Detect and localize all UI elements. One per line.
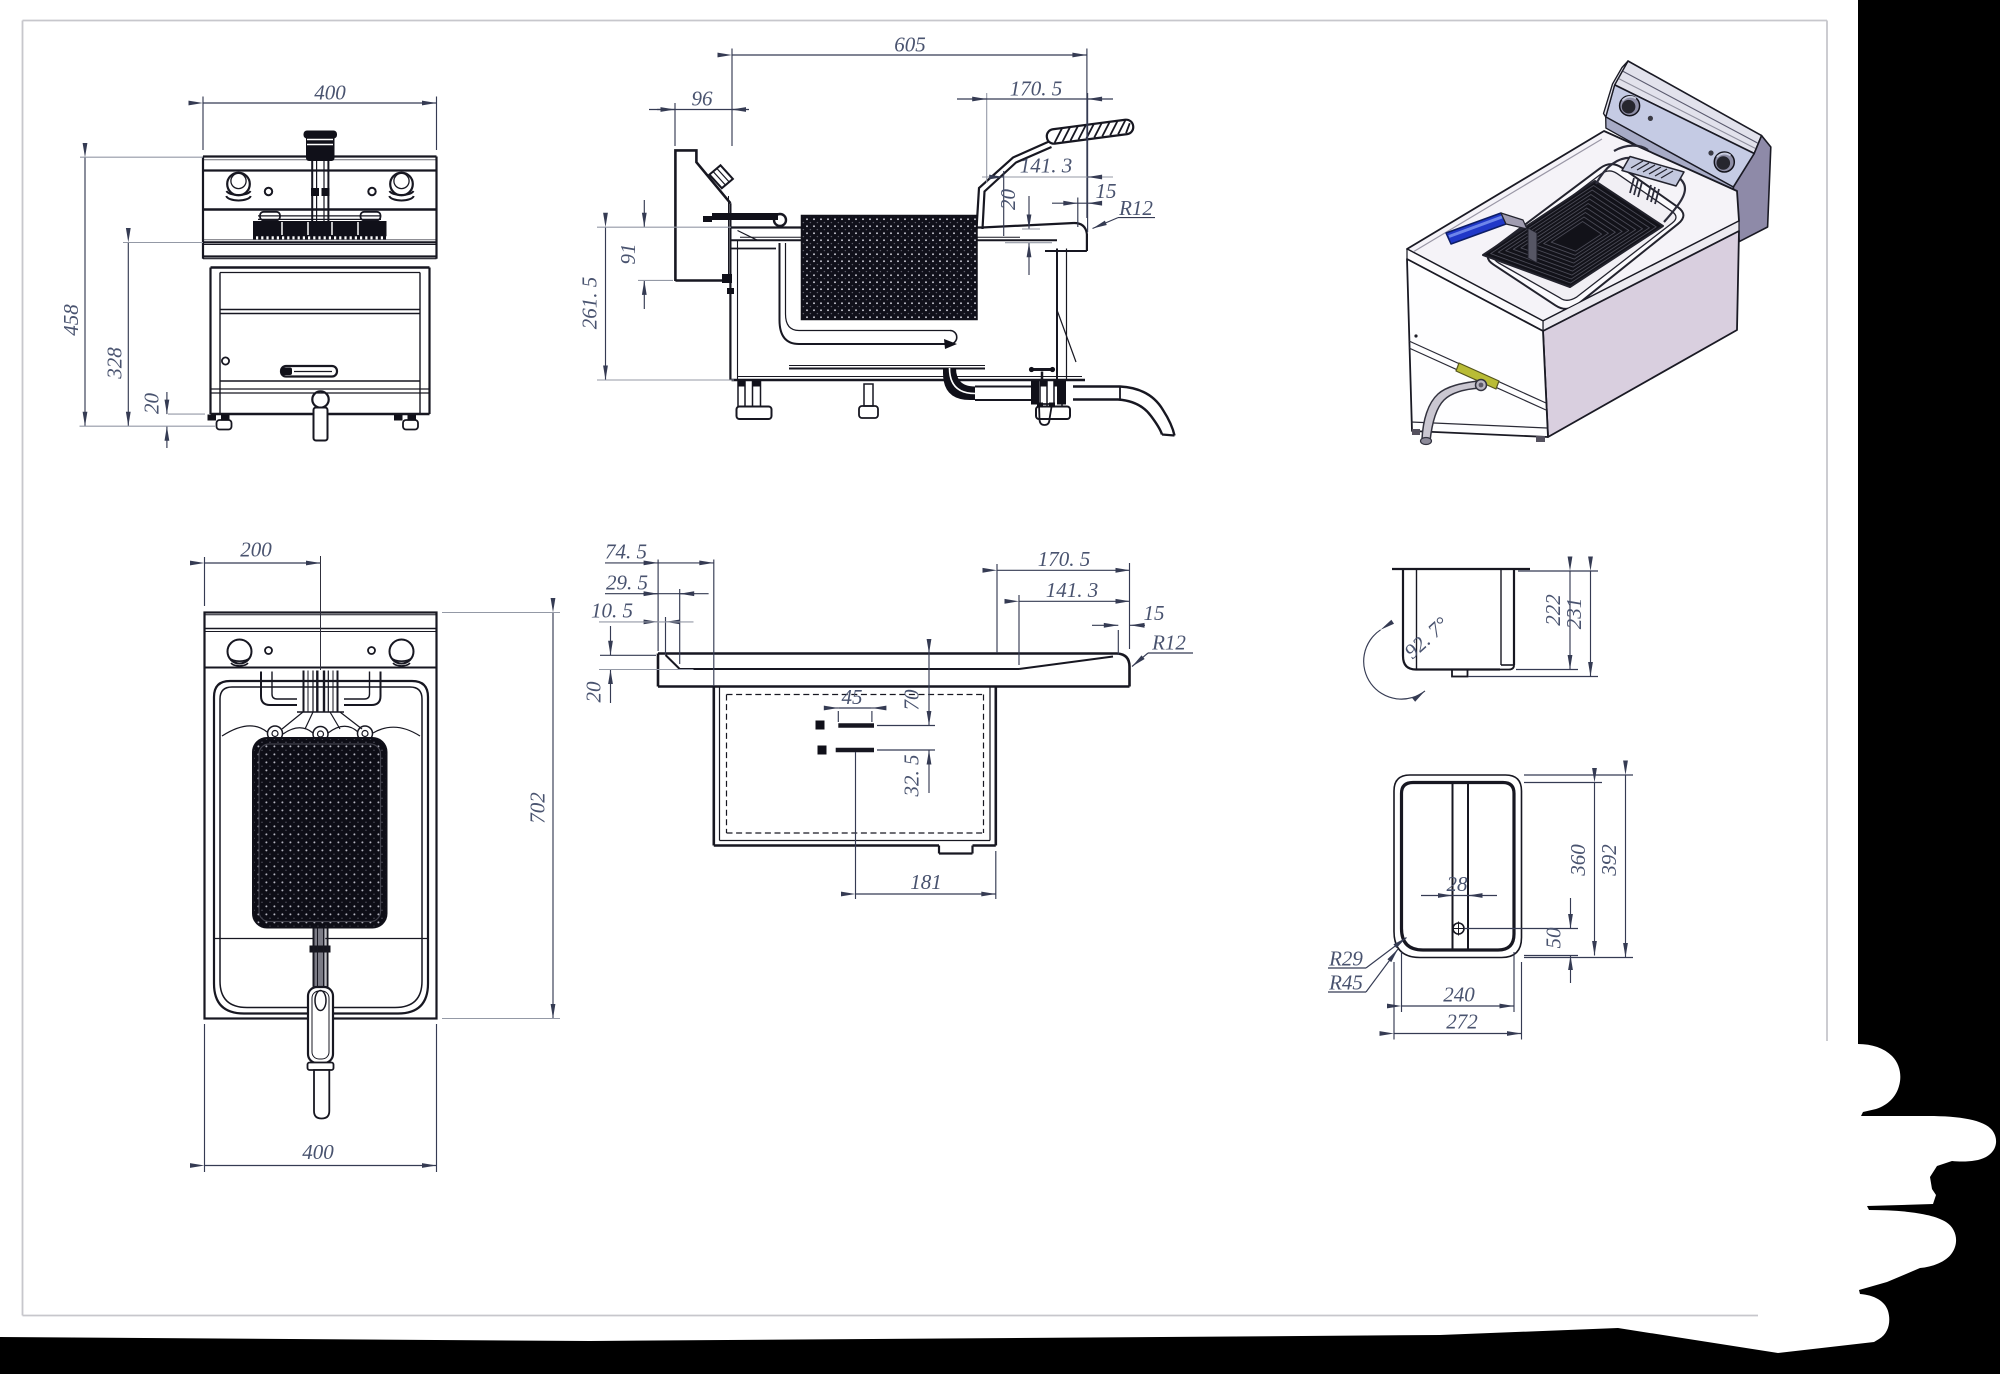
svg-text:328: 328 [103, 347, 127, 380]
svg-text:231: 231 [1562, 598, 1586, 630]
svg-text:74. 5: 74. 5 [605, 540, 647, 564]
svg-text:170. 5: 170. 5 [1010, 77, 1063, 101]
svg-text:R12: R12 [1118, 196, 1153, 220]
svg-text:28: 28 [1447, 872, 1469, 896]
svg-text:272: 272 [1446, 1010, 1478, 1034]
svg-text:50: 50 [1542, 927, 1566, 949]
svg-text:20: 20 [582, 681, 606, 703]
svg-text:392: 392 [1597, 844, 1621, 877]
svg-text:458: 458 [59, 304, 83, 336]
svg-text:R29: R29 [1328, 947, 1363, 971]
svg-text:261. 5: 261. 5 [578, 277, 602, 330]
svg-text:15: 15 [1144, 601, 1165, 625]
svg-text:32. 5: 32. 5 [900, 755, 924, 798]
svg-text:181: 181 [910, 870, 942, 894]
svg-text:200: 200 [240, 538, 272, 562]
svg-text:400: 400 [302, 1140, 334, 1164]
svg-text:15: 15 [1096, 179, 1117, 203]
svg-text:10. 5: 10. 5 [591, 599, 633, 623]
svg-text:70: 70 [900, 689, 924, 711]
svg-text:20: 20 [996, 189, 1020, 211]
svg-text:170. 5: 170. 5 [1038, 547, 1091, 571]
svg-text:R12: R12 [1151, 631, 1186, 655]
svg-text:240: 240 [1443, 983, 1475, 1007]
svg-text:45: 45 [842, 685, 863, 709]
svg-text:R45: R45 [1328, 971, 1363, 995]
svg-text:20: 20 [140, 393, 164, 415]
svg-text:141. 3: 141. 3 [1046, 578, 1099, 602]
svg-text:29. 5: 29. 5 [606, 571, 648, 595]
svg-text:702: 702 [526, 792, 550, 824]
svg-text:400: 400 [314, 81, 346, 105]
svg-text:141. 3: 141. 3 [1020, 154, 1073, 178]
svg-text:96: 96 [692, 87, 714, 111]
svg-text:360: 360 [1566, 844, 1590, 877]
svg-text:91: 91 [616, 244, 640, 265]
svg-text:605: 605 [894, 33, 926, 57]
